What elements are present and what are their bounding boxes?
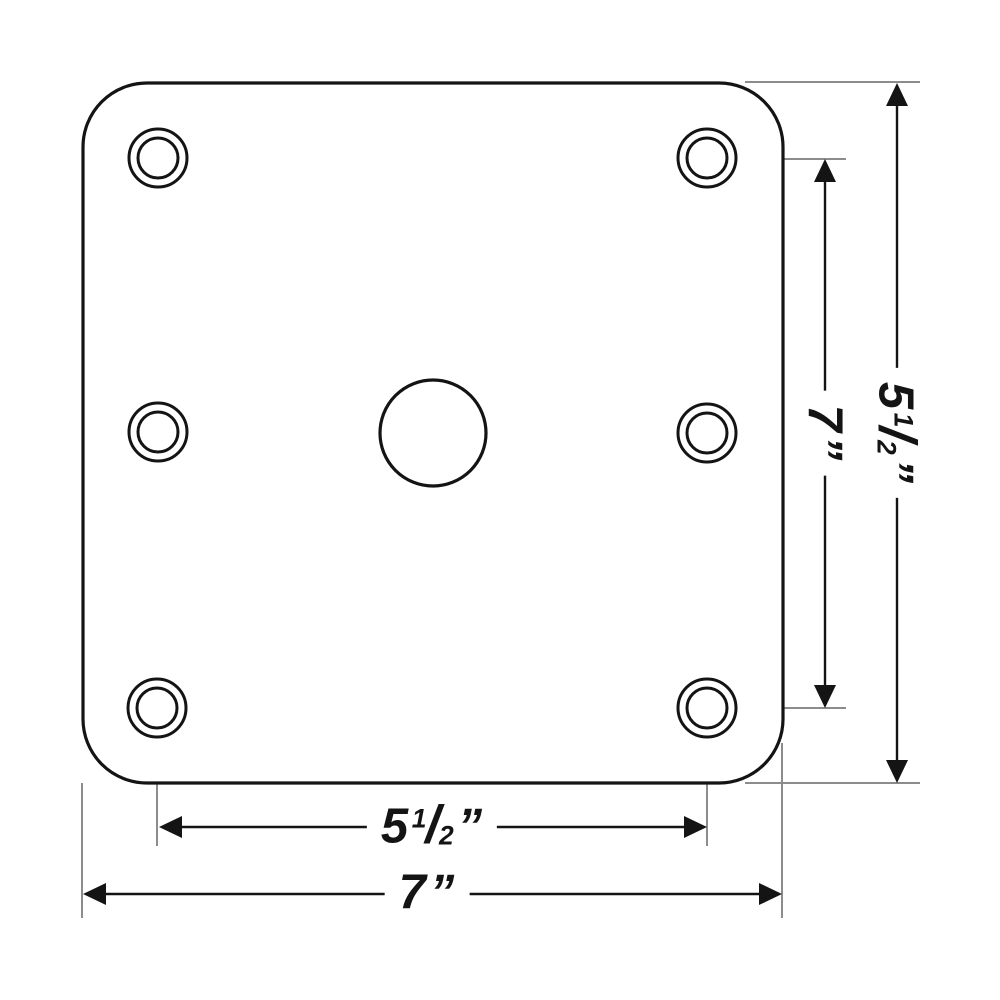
plate-dimension-diagram: 51/2” 7” 7” 51/2”: [0, 0, 1000, 1000]
dim-value-whole: 5: [868, 382, 922, 410]
dim-label-bottom-inner: 51/2”: [367, 800, 497, 853]
arrow-left-icon: [159, 816, 182, 838]
dim-unit-inches: ”: [798, 436, 852, 462]
arrow-up-icon: [886, 83, 908, 106]
diagram-canvas: [0, 0, 1000, 1000]
dim-unit-inches: ”: [430, 866, 456, 920]
arrow-up-icon: [814, 159, 836, 182]
dim-unit-inches: ”: [868, 459, 922, 485]
arrow-right-icon: [759, 883, 782, 905]
dim-label-right-inner: 7”: [800, 391, 849, 476]
dim-value-whole: 7: [399, 866, 427, 920]
dim-unit-inches: ”: [458, 800, 484, 854]
arrow-right-icon: [684, 816, 707, 838]
arrow-left-icon: [83, 883, 106, 905]
dim-label-right-outer: 51/2”: [870, 368, 923, 498]
dim-value-whole: 7: [798, 405, 852, 433]
dim-value-whole: 5: [381, 800, 409, 854]
dim-value-denominator: 2: [439, 821, 455, 851]
arrow-down-icon: [814, 685, 836, 708]
arrow-down-icon: [886, 760, 908, 783]
dim-value-denominator: 2: [871, 440, 901, 456]
dim-label-bottom-outer: 7”: [385, 869, 470, 918]
